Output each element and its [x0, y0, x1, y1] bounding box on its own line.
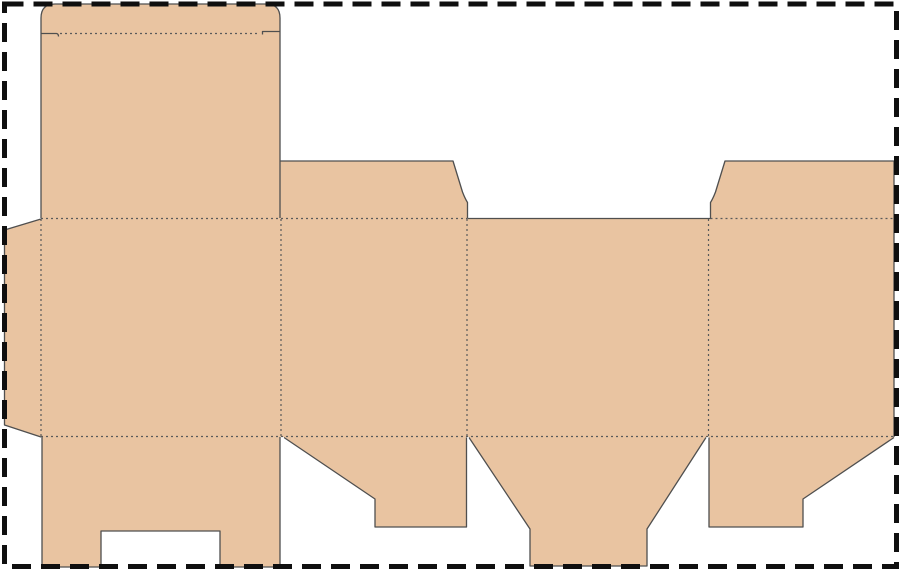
dust-flap-left [280, 161, 468, 219]
dieline-artboard [0, 0, 900, 571]
lid-panel [41, 4, 280, 218]
bottom-flap-side-right [709, 437, 894, 527]
bottom-flap-back [42, 437, 280, 567]
glue-flap [5, 219, 42, 437]
bottom-flap-front [469, 437, 706, 566]
dust-flap-right [711, 161, 895, 219]
dieline-canvas [0, 0, 900, 571]
